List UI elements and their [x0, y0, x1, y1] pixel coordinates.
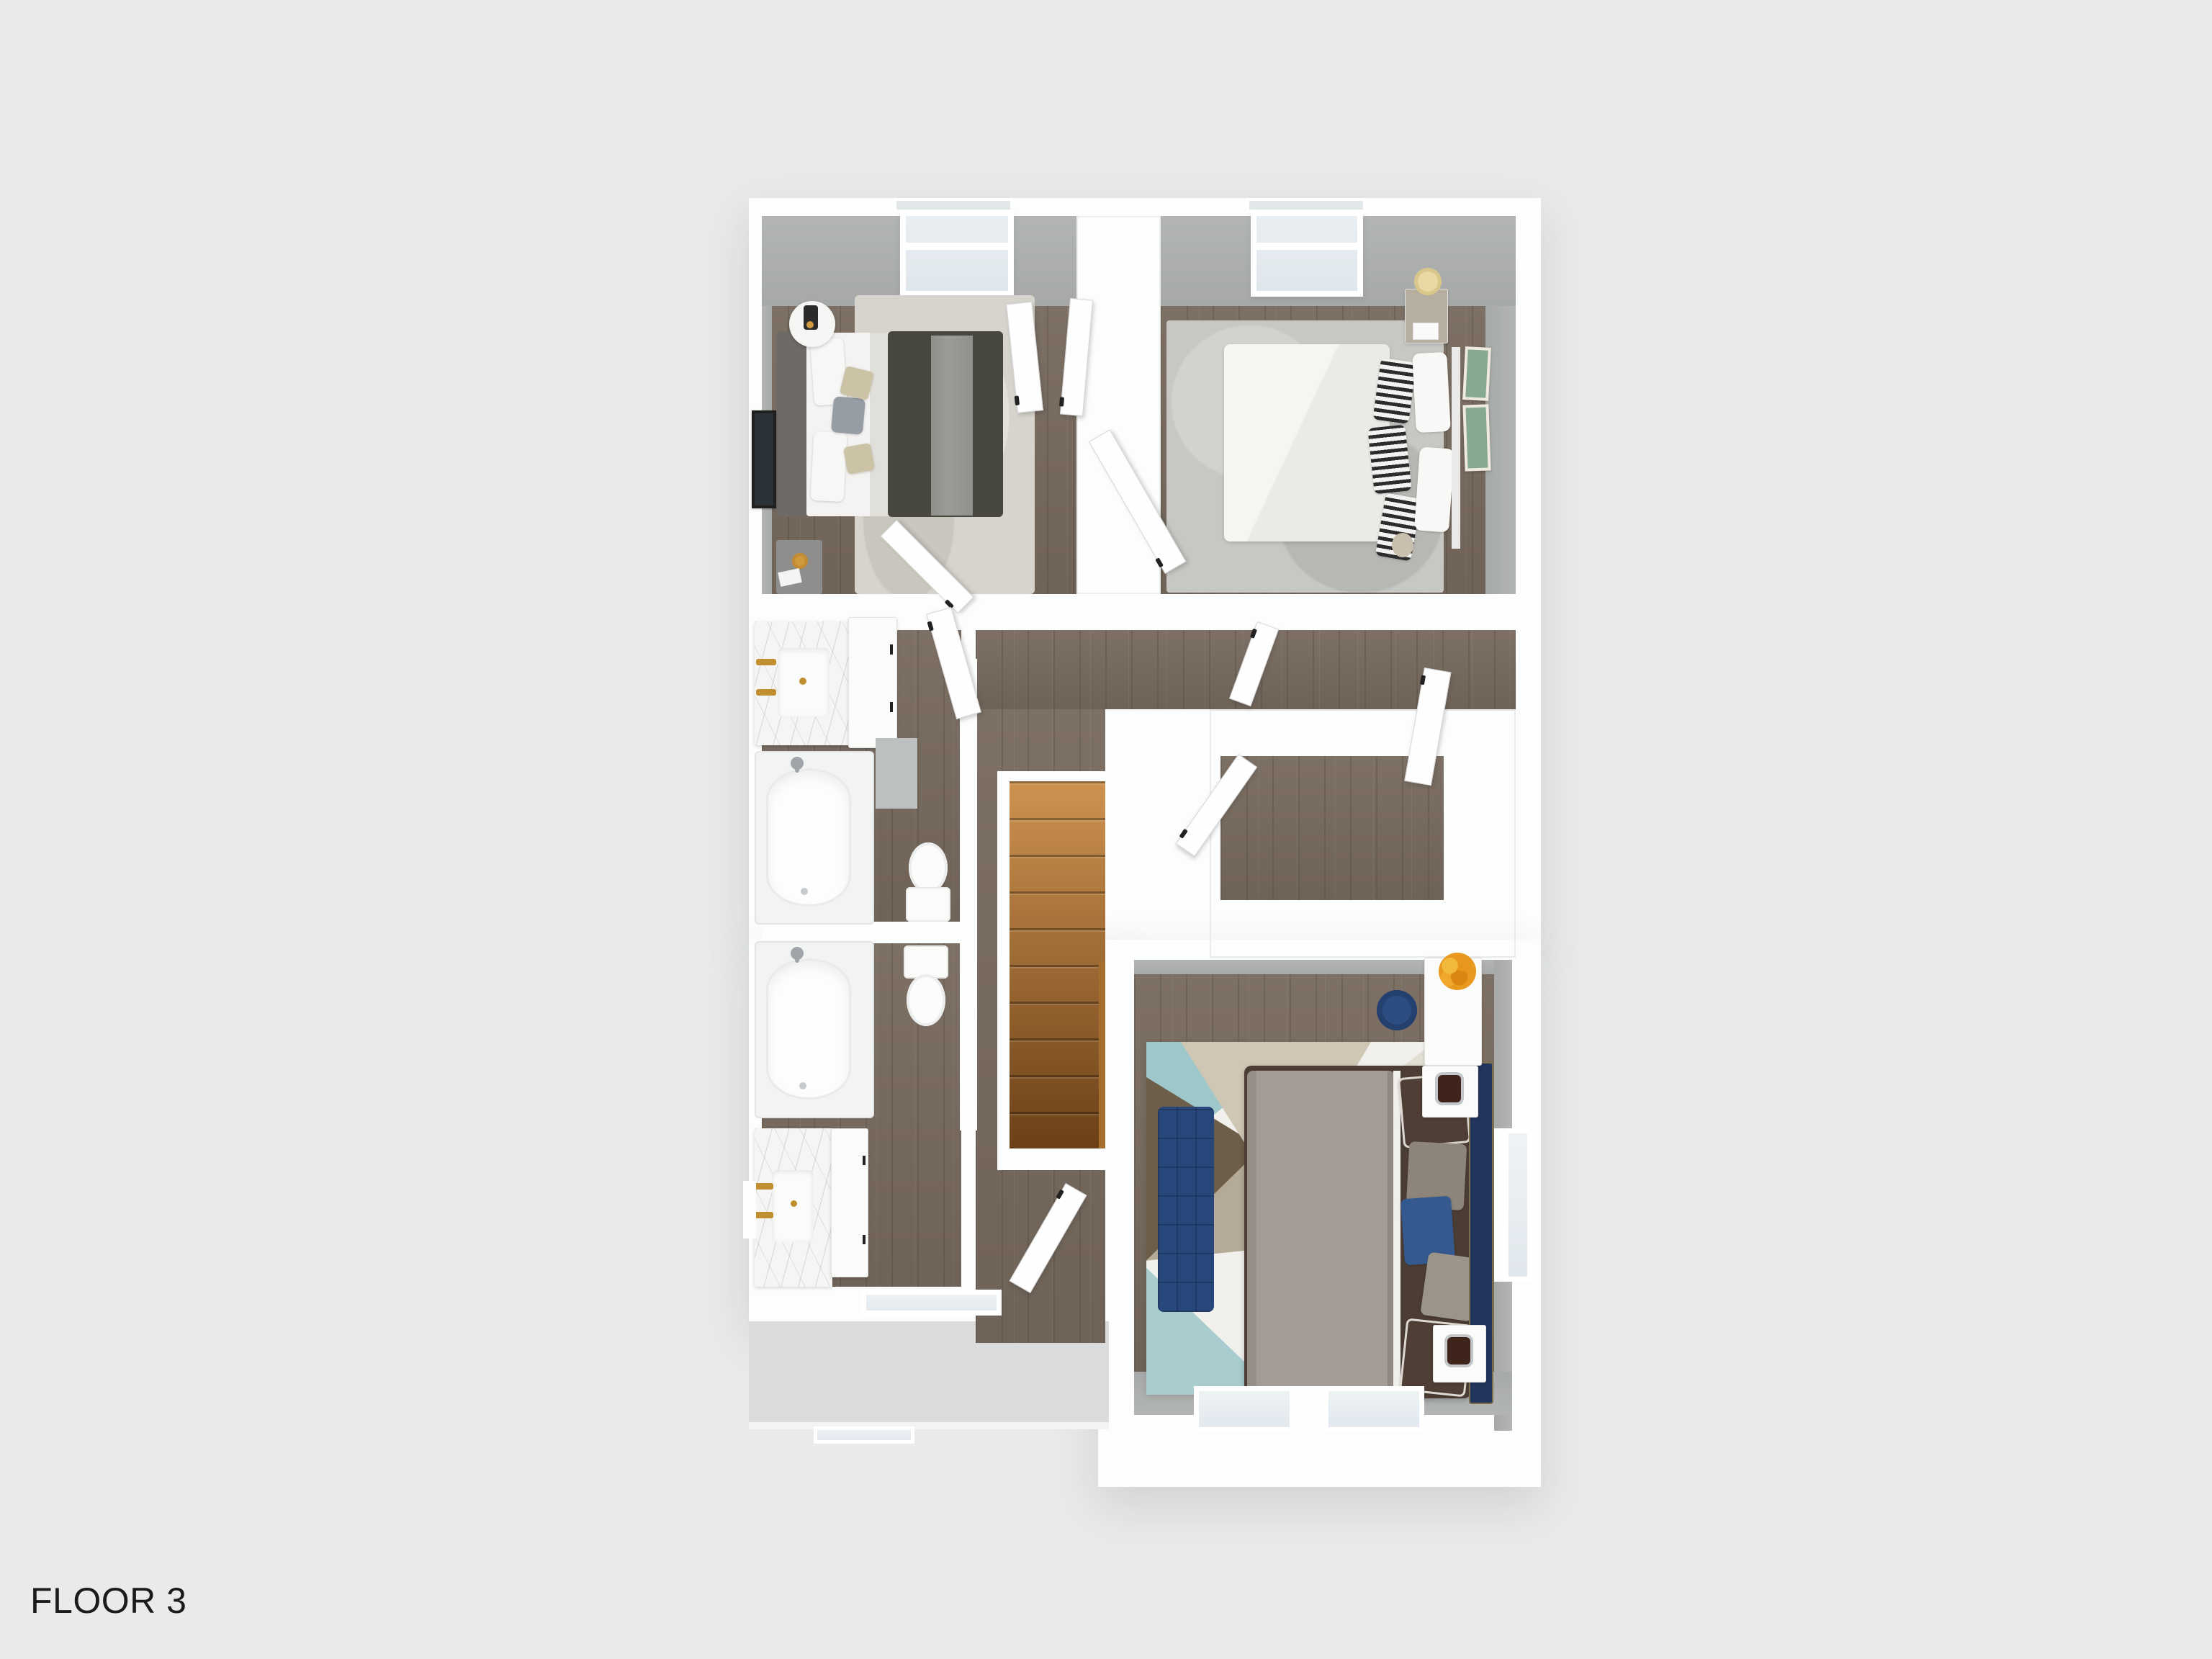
cabinet-handle-icon: [890, 644, 893, 655]
art-frame-botanical: [1462, 346, 1491, 401]
stair-landing-edge: [997, 771, 1105, 781]
bed-a-throw-blanket: [931, 336, 973, 516]
flower-bouquet: [1439, 953, 1476, 990]
striped-pillow: [1367, 425, 1411, 495]
desk-chair: [1377, 990, 1417, 1030]
art-frame-botanical: [1462, 404, 1491, 471]
bedroom-a: [762, 216, 1076, 594]
window-bath-south: [861, 1290, 1002, 1316]
table-lamp-icon: [1414, 268, 1442, 295]
pillow: [1414, 446, 1455, 532]
wall-bath-divider: [762, 922, 961, 943]
decor-hat: [792, 553, 808, 569]
pillow: [810, 338, 848, 406]
window-sill-a: [896, 201, 1010, 210]
faucet-gold-icon: [756, 689, 776, 696]
bed-master-comforter: [1247, 1071, 1395, 1395]
drain-gold: [799, 678, 806, 685]
bed-master-sheet-stripe: [1393, 1071, 1401, 1395]
floor-label: FLOOR 3: [30, 1580, 186, 1622]
bathtub-b-basin: [766, 958, 851, 1100]
bathtub-a-basin: [766, 768, 851, 907]
stair-banister: [1099, 961, 1105, 1148]
half-wall-ledge: [876, 738, 917, 809]
pillow: [811, 431, 848, 502]
shower-head-icon: [791, 757, 804, 770]
window-master-east: [1503, 1128, 1532, 1282]
floor-plan: [749, 198, 1541, 1487]
table-lamp-icon: [1447, 1337, 1470, 1364]
master-east-wallface: [1494, 960, 1512, 1128]
bed-b-duvet: [1224, 344, 1390, 541]
table-lamp-icon: [1438, 1075, 1461, 1102]
wall-bath-hall-divider: [960, 659, 977, 1130]
drain-gold: [791, 1200, 797, 1207]
bedroom-b: [1161, 216, 1516, 594]
window-pier: [1295, 1386, 1323, 1432]
window-nub-west: [743, 1181, 756, 1238]
bed-a-headboard: [776, 331, 811, 517]
bench: [1158, 1107, 1214, 1312]
toilet-a-tank: [906, 887, 950, 922]
skylight-window-b: [1251, 210, 1363, 297]
faucet-gold-icon: [755, 1183, 773, 1190]
window-sill-b: [1249, 201, 1363, 210]
stair-stringer: [997, 781, 1010, 1148]
decor-vase: [1392, 533, 1413, 557]
bed-b-frame-edge: [1452, 347, 1460, 549]
cabinet-handle-icon: [890, 702, 893, 712]
pillow: [831, 396, 866, 435]
toilet-b-bowl: [907, 974, 945, 1026]
cabinet-handle-icon: [863, 1235, 866, 1244]
cabinet-tall: [848, 617, 897, 748]
drain: [801, 888, 808, 895]
toilet-a-bowl: [909, 842, 948, 893]
pillow: [1412, 352, 1451, 433]
faucet-gold-icon: [756, 659, 776, 665]
staircase: [1010, 781, 1105, 1148]
window-master-south: [1194, 1386, 1295, 1432]
window-master-south: [1323, 1386, 1424, 1432]
decor-book: [1413, 323, 1439, 340]
window-roof-terrace: [814, 1426, 914, 1444]
cabinet-handle-icon: [863, 1156, 866, 1165]
shower-head-icon: [791, 947, 804, 960]
stair-bottom-wall: [997, 1148, 1134, 1170]
faucet-gold-icon: [755, 1212, 773, 1218]
skylight-window-a: [900, 210, 1014, 297]
pillow: [843, 443, 875, 475]
drain: [799, 1082, 806, 1089]
lamp-glow: [806, 321, 814, 328]
roof-edge: [749, 1422, 1109, 1429]
cabinet-tall: [831, 1128, 868, 1277]
art-frame: [752, 410, 776, 508]
